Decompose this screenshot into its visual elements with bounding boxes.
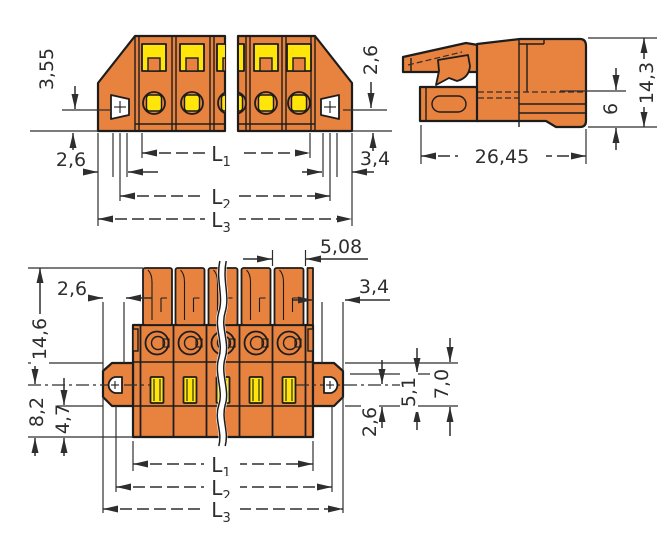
screw-hole: [321, 95, 339, 119]
front-left-half: [98, 36, 241, 131]
lower-arm: [420, 87, 478, 121]
dim-label-6: 6: [600, 103, 622, 115]
bottom-front-view: 5,08 2,6 3,4 14,6 8,2 4: [26, 236, 458, 526]
dim-label-14-6: 14,6: [29, 318, 51, 360]
dim-label-3-4-bottom: 3,4: [359, 276, 389, 298]
dim-label-2-6-right: 2,6: [360, 45, 382, 75]
dim-label-2-6-top: 2,6: [57, 278, 87, 300]
dim-label-26-45: 26,45: [475, 146, 529, 168]
latch-hook: [436, 55, 470, 85]
dim-label-3-55: 3,55: [36, 48, 58, 90]
dim-label-2-6-left: 2,6: [56, 149, 86, 171]
connector-housing-side: [477, 39, 586, 127]
dim-label-4-7: 4,7: [52, 404, 74, 434]
dim-label-14-3: 14,3: [636, 62, 658, 104]
dim-label-7-0: 7,0: [431, 369, 453, 399]
dim-label-8-2: 8,2: [26, 397, 48, 427]
dim-label-5-08: 5,08: [320, 236, 362, 258]
technical-drawing-page: 3,55 2,6 2,6 3,4: [0, 0, 671, 536]
dim-label-2-6-flange: 2,6: [359, 407, 381, 437]
dim-label-3-4-top: 3,4: [360, 148, 390, 170]
side-view: 26,45 14,3 6: [403, 38, 658, 168]
front-right-half: [224, 36, 352, 131]
dim-label-5-1: 5,1: [398, 377, 420, 407]
front-view-broken: 3,55 2,6 2,6 3,4: [30, 36, 392, 236]
connector-dimension-drawing: 3,55 2,6 2,6 3,4: [0, 0, 671, 536]
screw-hole: [111, 95, 129, 119]
pole-blocks: [143, 268, 313, 325]
